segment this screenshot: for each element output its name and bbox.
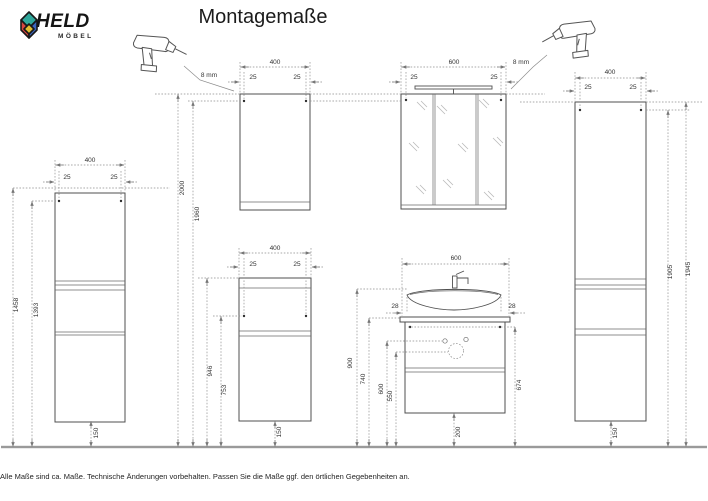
dim-wall-cabinet-height-holes: 1960 xyxy=(194,206,201,221)
montage-drawing: 400 25 25 1458 1393 150 400 25 25 xyxy=(0,0,708,501)
mid-cabinet-drawing: 400 25 25 946 753 150 xyxy=(198,245,323,447)
dim-left-tall-height-top: 1458 xyxy=(13,297,20,312)
dim-vanity-height-top: 740 xyxy=(360,373,367,384)
vanity-drawing: 600 28 28 900 740 600 550 674 200 xyxy=(347,255,525,447)
faucet xyxy=(453,271,469,288)
dim-right-tall-inset-left: 25 xyxy=(584,84,592,91)
floor-line xyxy=(1,446,707,448)
dim-left-tall-inset-right: 25 xyxy=(110,174,118,181)
dim-wall-cabinet-width: 400 xyxy=(270,59,281,66)
dim-vanity-height-holes-right: 674 xyxy=(516,379,523,390)
dim-mirror-cabinet-inset-right: 25 xyxy=(490,74,498,81)
dim-mid-cabinet-inset-left: 25 xyxy=(249,261,257,268)
dim-left-tall-inset-left: 25 xyxy=(63,174,71,181)
dim-left-tall-width: 400 xyxy=(85,157,96,164)
dim-right-tall-width: 400 xyxy=(605,69,616,76)
dim-left-tall-height-holes: 1393 xyxy=(33,302,40,317)
drill-hole-size-right: 8 mm xyxy=(513,59,529,66)
montage-sheet: { "header": { "brand": "HELD", "brand_su… xyxy=(0,0,708,501)
dim-mid-cabinet-height-holes: 753 xyxy=(221,384,228,395)
right-tall-cabinet-drawing: 400 25 25 1905 1945 150 xyxy=(520,69,702,447)
dim-left-tall-floor-gap: 150 xyxy=(93,427,100,438)
dim-vanity-height-hole-lower: 550 xyxy=(387,390,394,401)
dim-mid-cabinet-floor-gap: 150 xyxy=(276,426,283,437)
drill-icon xyxy=(128,30,190,80)
dim-vanity-gap-right: 28 xyxy=(508,303,516,310)
dim-wall-cabinet-inset-right: 25 xyxy=(293,74,301,81)
drill-callout-left: 8 mm xyxy=(128,30,234,91)
dim-right-tall-height-holes: 1905 xyxy=(667,264,674,279)
dim-mirror-cabinet-width: 600 xyxy=(449,59,460,66)
dim-right-tall-floor-gap: 150 xyxy=(612,427,619,438)
mirror-cabinet-drawing: 600 25 25 xyxy=(310,59,545,209)
dim-mid-cabinet-inset-right: 25 xyxy=(293,261,301,268)
dim-wall-cabinet-inset-left: 25 xyxy=(249,74,257,81)
dim-mirror-cabinet-inset-left: 25 xyxy=(410,74,418,81)
dim-vanity-height-hole-upper: 600 xyxy=(378,383,385,394)
left-tall-cabinet-drawing: 400 25 25 1458 1393 150 xyxy=(13,157,170,447)
dim-right-tall-inset-right: 25 xyxy=(629,84,637,91)
dim-right-tall-height-top: 1945 xyxy=(685,261,692,276)
dim-vanity-width: 600 xyxy=(451,255,462,262)
footer-disclaimer: Alle Maße sind ca. Maße. Technische Ände… xyxy=(0,472,410,481)
dim-mid-cabinet-height-top: 946 xyxy=(207,365,214,376)
drill-hole-size-left: 8 mm xyxy=(201,72,217,79)
dim-vanity-floor-gap: 200 xyxy=(455,426,462,437)
dim-vanity-height-basin: 900 xyxy=(347,357,354,368)
dim-vanity-gap-left: 28 xyxy=(391,303,399,310)
dim-wall-cabinet-height-top: 2000 xyxy=(179,180,186,195)
dim-mid-cabinet-width: 400 xyxy=(270,245,281,252)
drill-icon xyxy=(539,16,602,67)
